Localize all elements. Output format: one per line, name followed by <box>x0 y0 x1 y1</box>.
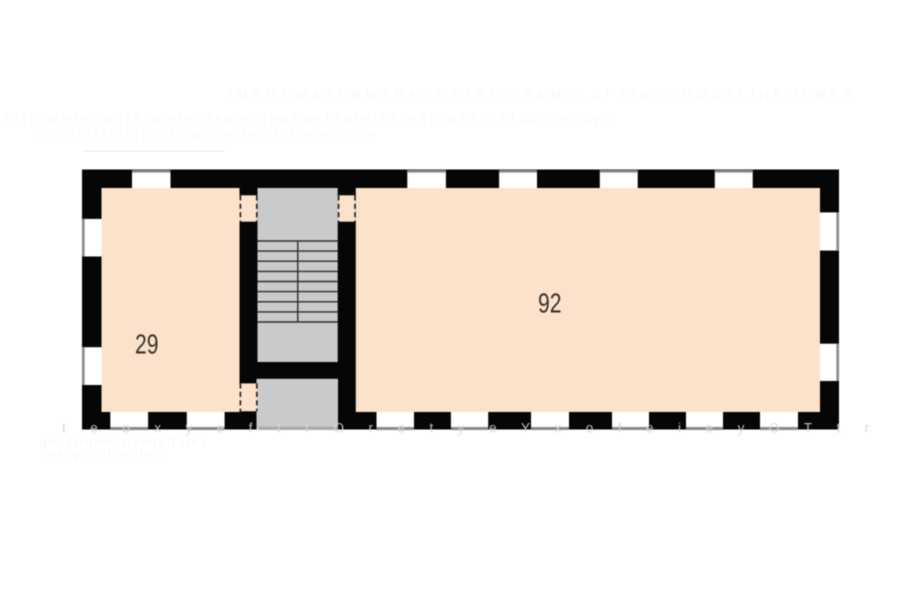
svg-text:ghostrowbottomleftarea: ghostrowbottomleftarea <box>40 435 209 449</box>
svg-text:IMAGEWATERMARKTEXTROWSAMPLEFAI: IMAGEWATERMARKTEXTROWSAMPLEFAINTGHOSTLIN… <box>228 87 857 102</box>
svg-text:teoxyeftfOretyeYxofeieyOTtr: teoxyeftfOretyeYxofeieyOTtr <box>62 421 894 436</box>
svg-text:shorterfaintghostrowofletterst: shorterfaintghostrowofletterstotheleftsi… <box>36 128 378 142</box>
svg-text:92: 92 <box>538 287 562 318</box>
svg-text:smallghosttracehere: smallghosttracehere <box>40 449 168 460</box>
svg-text:29: 29 <box>135 329 159 360</box>
svg-text:faintwatermarkrowtextsamplegho: faintwatermarkrowtextsampleghostedletter… <box>4 111 615 126</box>
